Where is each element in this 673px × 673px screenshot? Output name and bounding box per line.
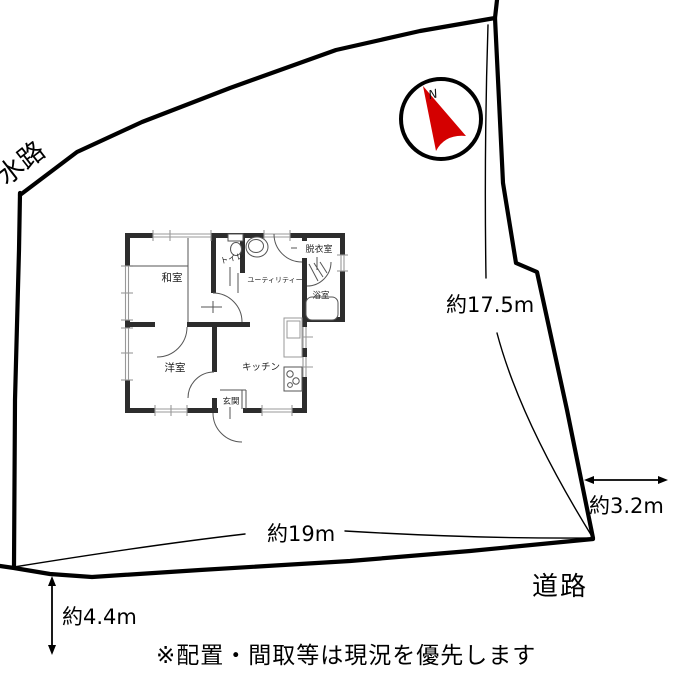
dim-line-bottom-left xyxy=(14,534,245,567)
site-plan-image: N xyxy=(0,0,673,673)
room-label-washitsu: 和室 xyxy=(162,271,183,284)
washbasin-icon xyxy=(246,237,268,257)
disclaimer-note: ※配置・間取等は現況を優先します xyxy=(156,643,536,669)
room-label-bathroom: 浴室 xyxy=(312,290,330,301)
dim-line-right-lower xyxy=(497,333,593,538)
boundary-right-edge xyxy=(495,18,593,538)
room-label-western-room: 洋室 xyxy=(165,361,186,374)
dim-road-width-label: 約3.2m xyxy=(589,494,664,518)
room-label-utility: ユーティリティー xyxy=(247,276,302,284)
room-label-dressing-room: 脱衣室 xyxy=(305,243,332,255)
dim-line-bottom-right xyxy=(345,531,593,538)
room-label-entrance: 玄関 xyxy=(222,396,239,407)
dim-bottom-label: 約19m xyxy=(267,522,335,546)
room-label-kitchen: キッチン xyxy=(242,362,280,373)
floor-plan: 和室 トイレ ユーティリティー 脱衣室 浴室 洋室 キッチン 玄関 xyxy=(121,230,348,442)
road-width-arrow xyxy=(584,476,668,484)
kitchen-counter-icon xyxy=(284,318,302,357)
dim-left-offset-label: 約4.4m xyxy=(62,605,137,629)
stove-icon xyxy=(284,367,302,391)
road-label: 道路 xyxy=(532,572,588,602)
dim-line-right-upper xyxy=(485,25,488,278)
compass: N xyxy=(401,79,481,159)
waterway-label: 水路 xyxy=(0,136,51,192)
site-boundary xyxy=(0,0,593,577)
left-offset-arrow xyxy=(48,576,56,655)
boundary-left-edge xyxy=(14,193,20,566)
dim-right-label: 約17.5m xyxy=(446,293,534,317)
site-plan-svg: N xyxy=(0,0,673,673)
